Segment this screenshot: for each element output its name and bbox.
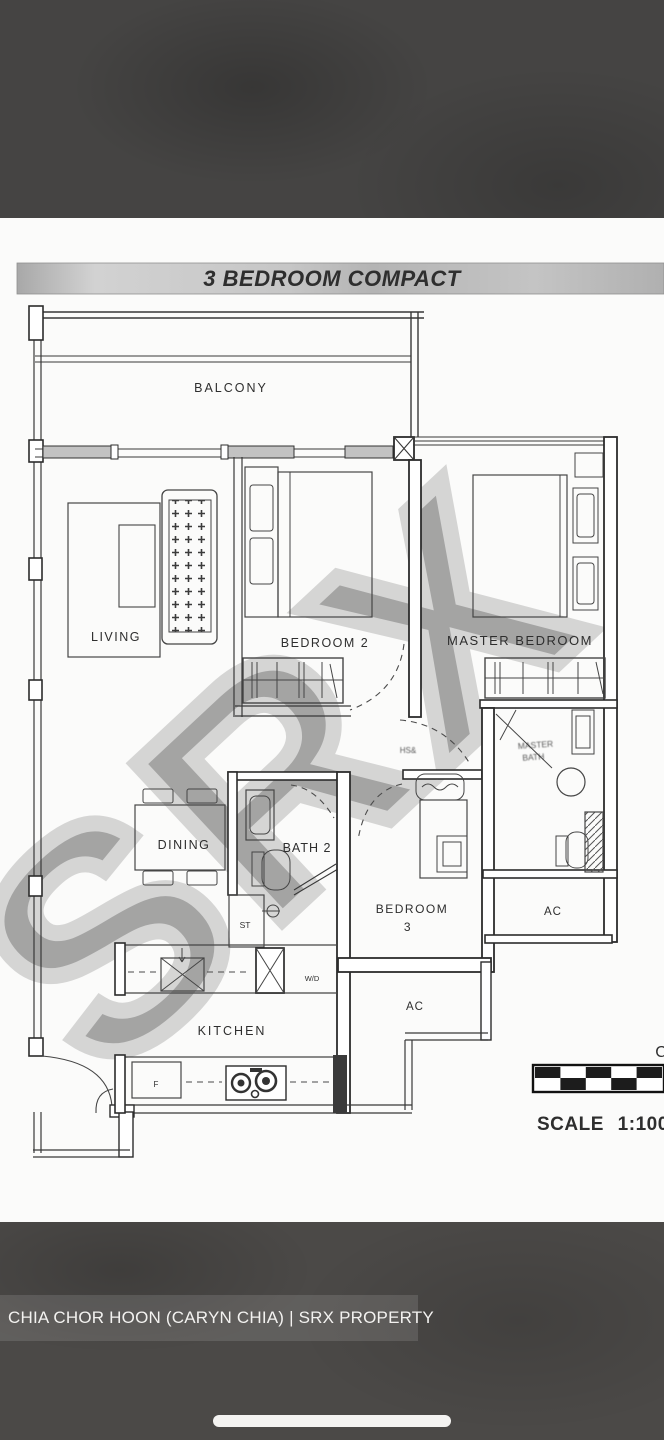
plan-title-bar: 3 BEDROOM COMPACT [17,263,664,294]
label-dining: DINING [158,838,211,852]
label-storage: ST [240,920,251,930]
label-ac-right: AC [544,906,562,918]
label-fridge: F [154,1080,159,1089]
stove-icon [226,1066,286,1100]
label-master-bath-2: BATH [522,751,545,763]
label-bedroom3: BEDROOM [376,902,449,916]
floorplan-image[interactable]: SRX 3 BEDROOM COMPACT [0,218,664,1222]
scale-label: SCALE 1:100 [537,1114,664,1135]
label-bedroom2: BEDROOM 2 [281,636,370,650]
letterbox-top [0,0,664,218]
plan-title: 3 BEDROOM COMPACT [203,266,461,291]
label-balcony: BALCONY [194,381,268,395]
tv-console [162,490,217,644]
label-bath2: BATH 2 [283,841,332,855]
label-illegible: HS& [400,746,417,755]
home-indicator[interactable] [213,1415,451,1427]
label-kitchen: KITCHEN [198,1024,267,1038]
photo-viewer-screen: SRX 3 BEDROOM COMPACT [0,0,664,1440]
label-master-bedroom: MASTER BEDROOM [447,633,593,648]
agent-caption-text: CHIA CHOR HOON (CARYN CHIA) | SRX PROPER… [8,1308,434,1327]
agent-caption-bar: CHIA CHOR HOON (CARYN CHIA) | SRX PROPER… [0,1295,418,1341]
ac-duct-box-icon [394,437,414,460]
scale-partial-char: C [655,1044,664,1061]
label-ac-bottom: AC [406,1001,424,1013]
label-living: LIVING [91,630,141,644]
washer-dryer-icon [256,948,284,993]
label-washer-dryer: W/D [305,974,320,983]
label-bedroom3-number: 3 [404,920,412,934]
